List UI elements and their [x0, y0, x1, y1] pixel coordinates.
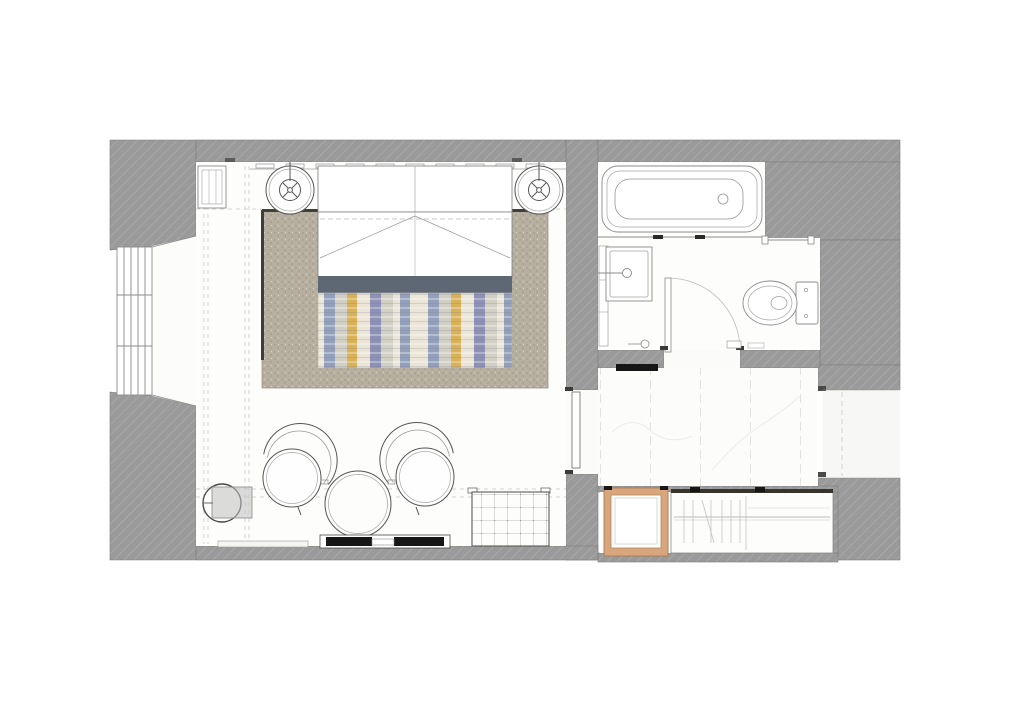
wall-divider-upper	[566, 140, 598, 390]
wall-right-of-bathroom	[820, 240, 900, 365]
wall-junction-tick	[225, 158, 235, 162]
media-unit-left-block	[326, 537, 372, 546]
wardrobe-tick	[690, 487, 700, 492]
window-frame	[117, 247, 152, 395]
wall-right-mid	[818, 365, 900, 390]
closet-row	[604, 486, 833, 556]
towel-rail-bracket	[808, 236, 814, 244]
armchair-left-seat	[263, 449, 321, 507]
wood-cabinet-panel	[615, 498, 657, 544]
doorway-bathroom-landing-floor	[664, 350, 740, 368]
bed	[318, 166, 512, 368]
cabinet-inner	[202, 170, 222, 204]
bathroom-accessory	[748, 343, 764, 348]
rug-dark-edge-left	[261, 210, 264, 360]
pendant-center-left	[288, 188, 293, 193]
towel-rail-bracket	[762, 236, 768, 244]
bathtub-outer	[602, 166, 762, 232]
door-jamb-tick	[565, 470, 573, 474]
pendant-center-right	[537, 188, 542, 193]
door-jamb-tick	[818, 472, 826, 477]
media-unit-center	[372, 539, 394, 545]
wall-top-left	[110, 140, 196, 250]
side-table-group	[203, 484, 252, 522]
toilet-roll-holder	[641, 340, 649, 348]
pocket-door-leaf	[572, 392, 580, 468]
door-jamb-tick	[565, 387, 573, 391]
media-unit	[320, 535, 450, 548]
bathroom-door-leaf	[665, 278, 671, 352]
wall-closet-right	[833, 492, 838, 553]
wall-right-of-tub	[765, 162, 900, 240]
wall-cabinet	[198, 166, 226, 208]
armchair-right-seat	[396, 448, 454, 506]
bed-blanket-band	[318, 276, 512, 293]
landing-floor	[598, 368, 818, 486]
cabinet-tick	[604, 486, 612, 490]
floor-vent	[218, 541, 308, 547]
bay-window-recess-floor	[152, 236, 196, 406]
wall-bottom-left	[110, 392, 196, 560]
round-table	[325, 471, 391, 537]
door-jamb-tick	[660, 346, 668, 350]
toilet-bowl	[743, 281, 797, 325]
side-table-box	[212, 487, 252, 518]
cabinet-tick	[660, 486, 668, 490]
media-unit-right-block	[394, 537, 444, 546]
screen-tick	[653, 235, 663, 239]
sink-faucet	[623, 269, 632, 278]
floor-plan-drawing	[0, 0, 1024, 724]
wall-top-band	[196, 140, 566, 162]
tufted-ottoman	[468, 488, 550, 546]
wall-bathroom-bottom-right	[740, 350, 820, 368]
wardrobe-tick	[755, 487, 765, 492]
doorway-bedroom-landing-floor	[566, 390, 598, 474]
landing-vent-bar	[616, 364, 658, 371]
ottoman-top	[472, 492, 549, 546]
bathtub	[598, 166, 765, 239]
bathroom-accessory	[727, 341, 741, 348]
wall-junction-tick	[512, 158, 522, 162]
bed-throw-patterned	[318, 293, 512, 368]
wall-top-right-band	[598, 140, 900, 162]
corridor-floor	[823, 390, 900, 478]
screen-tick	[695, 235, 705, 239]
floor-plan-page	[0, 0, 1024, 724]
toilet-cistern	[796, 282, 818, 324]
wardrobe	[671, 492, 833, 553]
